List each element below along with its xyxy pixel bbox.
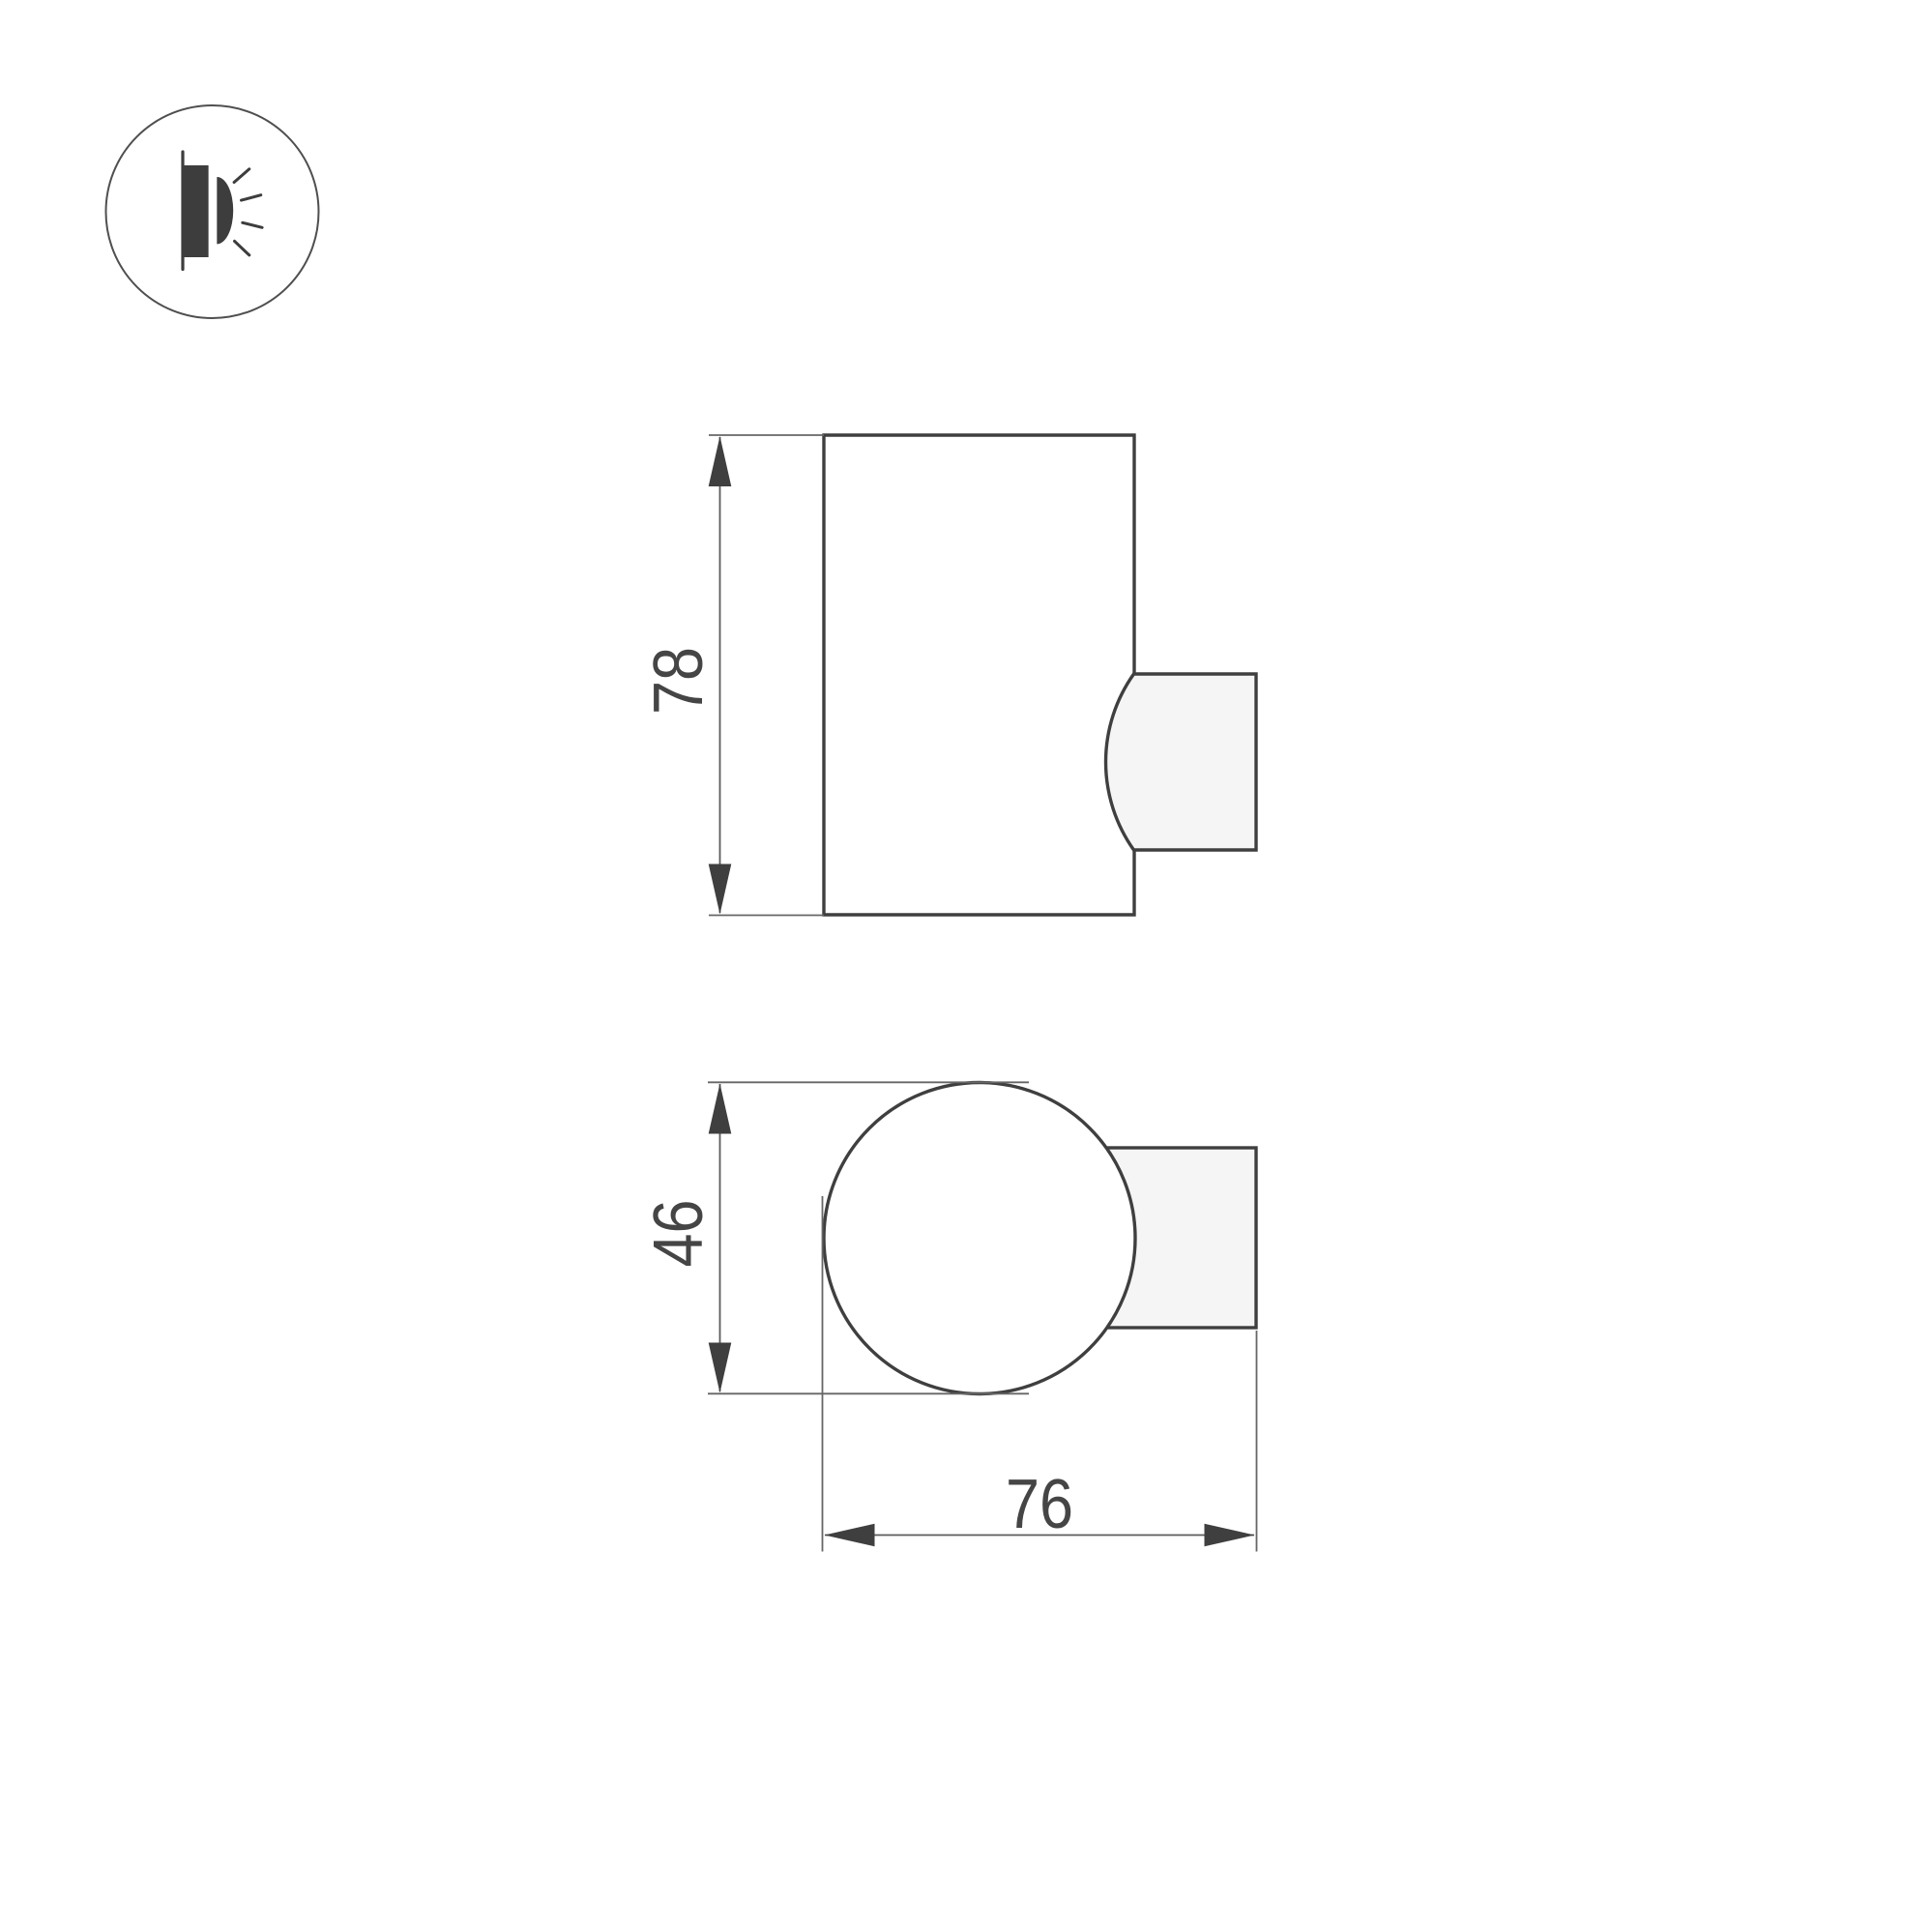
svg-text:46: 46: [640, 1200, 717, 1268]
svg-text:76: 76: [1006, 1466, 1073, 1543]
svg-text:78: 78: [640, 647, 717, 715]
